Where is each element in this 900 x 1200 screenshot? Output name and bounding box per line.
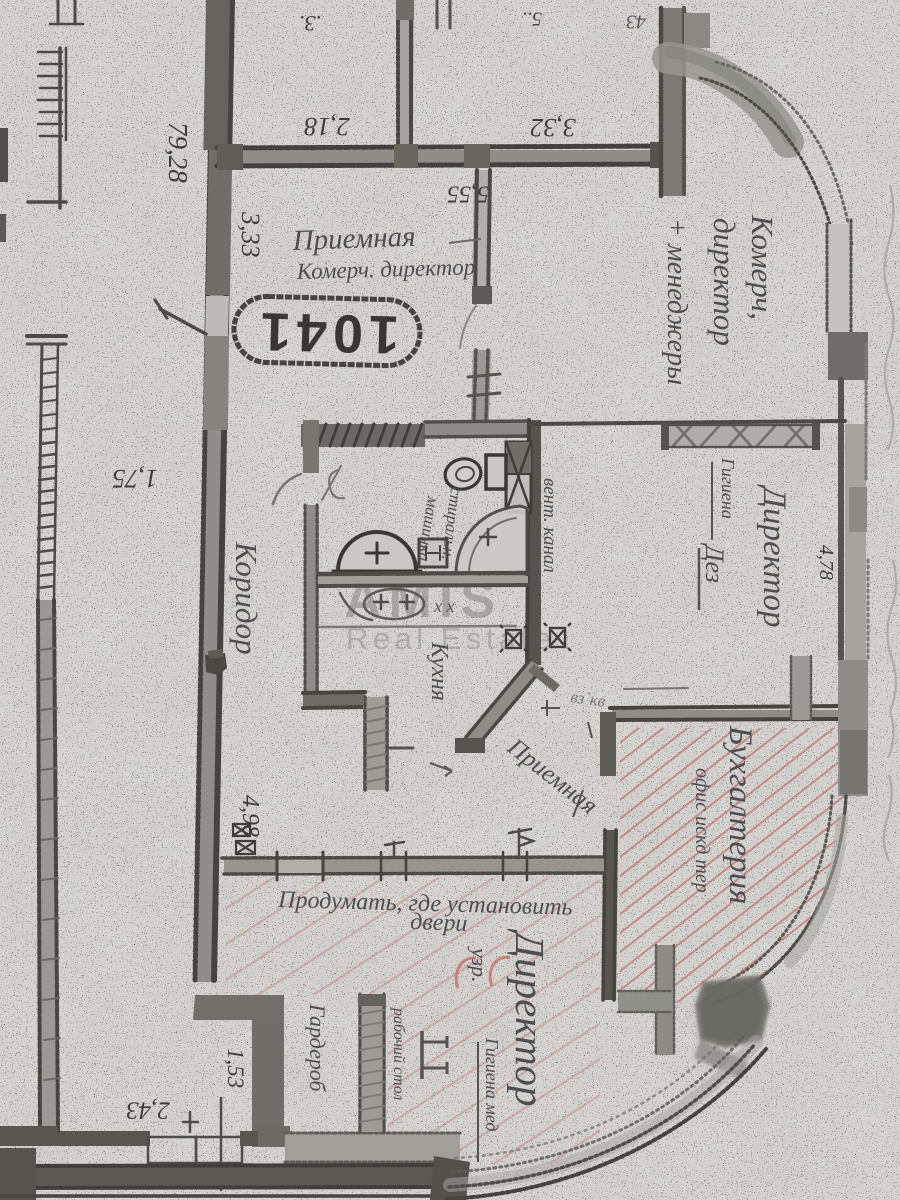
- svg-text:Директор: Директор: [507, 928, 553, 1107]
- svg-text:3,32: 3,32: [530, 113, 577, 142]
- svg-text:Приемная: Приемная: [291, 221, 416, 257]
- svg-text:Кухня: Кухня: [426, 641, 452, 701]
- svg-text:Комерч,: Комерч,: [745, 214, 780, 320]
- svg-text:79,28: 79,28: [163, 122, 193, 183]
- svg-text:офис искд тер: офис искд тер: [691, 768, 713, 893]
- svg-text:1041: 1041: [254, 301, 400, 365]
- svg-text:43: 43: [626, 10, 646, 32]
- svg-text:рабочий стол: рабочий стол: [390, 1007, 407, 1100]
- svg-text:2,43: 2,43: [126, 1096, 170, 1123]
- svg-text:.3.: .3.: [299, 11, 321, 36]
- svg-text:Гигиена: Гигиена: [718, 457, 738, 519]
- svg-text:2,18: 2,18: [304, 112, 350, 141]
- svg-text:+ менеджеры: + менеджеры: [661, 218, 692, 385]
- svg-text:x x: x x: [433, 596, 454, 616]
- svg-text:1,75: 1,75: [112, 464, 158, 493]
- svg-text:двери: двери: [410, 909, 468, 937]
- svg-text:Гигиена мед: Гигиена мед: [482, 1037, 502, 1131]
- svg-text:4,78: 4,78: [815, 545, 837, 580]
- svg-text:1,53: 1,53: [223, 1048, 248, 1088]
- svg-text:5,55: 5,55: [447, 180, 489, 206]
- svg-text:Гардероб: Гардероб: [305, 1003, 330, 1093]
- svg-text:Бухгалтерия: Бухгалтерия: [722, 725, 758, 905]
- svg-text:Коридор: Коридор: [229, 541, 264, 655]
- svg-text:Дез: Дез: [700, 542, 729, 583]
- svg-text:Комерч. директор: Комерч. директор: [295, 254, 475, 284]
- svg-text:5..: 5..: [522, 7, 542, 29]
- svg-text:узр.: узр.: [467, 946, 492, 983]
- svg-text:Директор: Директор: [756, 484, 792, 627]
- svg-text:вент. канал: вент. канал: [539, 478, 560, 573]
- svg-text:3,33: 3,33: [236, 211, 265, 258]
- svg-text:директор: директор: [707, 218, 742, 346]
